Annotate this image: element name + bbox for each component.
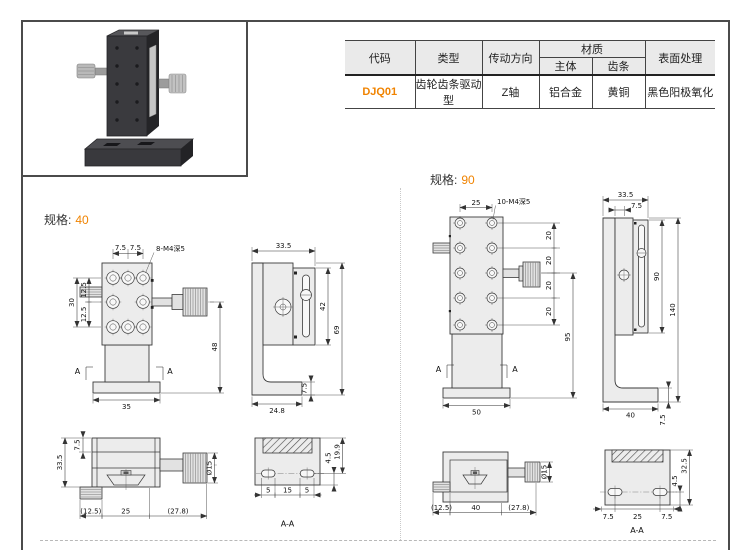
dim-label: 33.5 <box>276 242 292 250</box>
dim-label: 25 <box>472 199 481 207</box>
spec90-side-view: 33.5 7.5 90 140 40 7.5 <box>595 185 740 435</box>
col-header-code: 代码 <box>345 41 415 76</box>
spec-table: 代码 类型 传动方向 材质 表面处理 主体 齿条 DJQ01 齿轮齿条驱动型 Z… <box>345 40 715 109</box>
section-mark-label: A <box>436 365 442 374</box>
dim-label: 25 <box>121 507 130 515</box>
spec90-label: 规格:90 <box>430 171 475 188</box>
spec90-front-view: 25 10-M4深5 20 20 20 20 95 50 A A <box>425 195 610 435</box>
spec40-front-geometry <box>80 263 215 393</box>
dim-label: 12.5 <box>80 282 88 298</box>
catalog-page: 代码 类型 传动方向 材质 表面处理 主体 齿条 DJQ01 齿轮齿条驱动型 Z… <box>0 0 750 550</box>
dim-label: 32.5 <box>681 458 689 474</box>
section-mark-label: A <box>75 367 81 376</box>
spec90-section-view: 32.5 4.5 7.5 25 7.5 A-A <box>580 430 740 545</box>
dim-label: 15 <box>283 487 292 495</box>
dim-label: 19.9 <box>334 444 342 460</box>
dim-label: 50 <box>472 409 481 417</box>
spec40-label: 规格:40 <box>44 211 89 228</box>
spec90-top-geometry <box>433 452 548 502</box>
dim-label: 7.5 <box>661 513 672 521</box>
dim-label: 140 <box>669 303 677 316</box>
dim-label: 25 <box>633 513 642 521</box>
spec40-side-geometry <box>252 263 315 395</box>
dim-label: 5 <box>266 487 270 495</box>
cell-rack-material: 黄铜 <box>592 75 645 109</box>
spec90-value: 90 <box>461 173 474 187</box>
spec90-front-geometry <box>433 216 547 398</box>
spec-section-divider <box>400 188 401 540</box>
thread-callout: 10-M4深5 <box>497 197 530 206</box>
spec40-front-view: 7.5 7.5 8-M4深5 12.5 12.5 30 48 35 A A <box>55 235 230 423</box>
dim-label: Ø15 <box>541 465 549 479</box>
dim-label: 95 <box>564 333 572 342</box>
spec40-top-view: 33.5 7.5 Ø15 (12.5) 25 (27.8) <box>45 425 235 530</box>
section-mark-label: A <box>167 367 173 376</box>
dim-label: (12.5) <box>431 504 452 512</box>
spec40-label-text: 规格: <box>44 213 71 227</box>
dim-label: 40 <box>471 504 480 512</box>
dim-label: 7.5 <box>115 244 126 252</box>
dim-label: (27.8) <box>167 507 188 515</box>
thread-callout: 8-M4深5 <box>156 244 185 253</box>
spec40-section-geometry <box>255 438 324 485</box>
col-header-rack: 齿条 <box>592 58 645 76</box>
section-mark-label: A <box>512 365 518 374</box>
col-header-material: 材质 <box>539 41 645 58</box>
dim-label: 20 <box>545 281 553 290</box>
col-header-type: 类型 <box>415 41 482 76</box>
col-header-body: 主体 <box>539 58 592 76</box>
dim-label: 4.5 <box>325 452 333 463</box>
dim-label: 48 <box>211 343 219 352</box>
cell-surface: 黑色阳极氧化 <box>645 75 715 109</box>
dim-label: 7.5 <box>659 414 667 425</box>
dim-label: 20 <box>545 256 553 265</box>
spec40-top-geometry <box>80 438 217 499</box>
dim-label: 4.5 <box>671 475 679 486</box>
dim-label: 7.5 <box>74 439 82 450</box>
spec90-side-geometry <box>603 218 658 402</box>
cell-code: DJQ01 <box>345 75 415 109</box>
dim-label: 42 <box>319 302 327 311</box>
col-header-surface: 表面处理 <box>645 41 715 76</box>
section-title: A-A <box>630 526 644 535</box>
dim-label: Ø15 <box>206 461 214 475</box>
dim-label: (27.8) <box>508 504 529 512</box>
cell-body-material: 铝合金 <box>539 75 592 109</box>
dim-label: 35 <box>122 403 131 411</box>
dim-label: 33.5 <box>618 191 634 199</box>
dim-label: (12.5) <box>80 507 101 515</box>
dim-label: 20 <box>545 307 553 316</box>
spec40-side-view: 33.5 42 69 7.5 24.8 <box>240 235 360 425</box>
spec90-section-geometry <box>600 450 677 505</box>
dim-label: 5 <box>305 487 309 495</box>
col-header-direction: 传动方向 <box>482 41 539 76</box>
cell-direction: Z轴 <box>482 75 539 109</box>
dim-label: 7.5 <box>130 244 141 252</box>
cell-type: 齿轮齿条驱动型 <box>415 75 482 109</box>
dim-label: 20 <box>545 231 553 240</box>
dim-label: 12.5 <box>80 307 88 323</box>
section-title: A-A <box>281 520 295 529</box>
product-photo <box>23 22 246 175</box>
dim-label: 40 <box>626 412 635 420</box>
dim-label: 33.5 <box>56 455 64 471</box>
dim-label: 30 <box>68 298 76 307</box>
dim-label: 69 <box>333 326 341 335</box>
product-photo-box <box>21 20 248 177</box>
dim-label: 24.8 <box>269 407 285 415</box>
spec90-label-text: 规格: <box>430 173 457 187</box>
spec40-value: 40 <box>75 213 88 227</box>
dim-label: 7.5 <box>603 513 614 521</box>
dim-label: 7.5 <box>301 383 309 394</box>
dim-label: 7.5 <box>631 202 642 210</box>
dim-label: 90 <box>653 272 661 281</box>
spec40-section-view: 19.9 4.5 5 15 5 A-A <box>245 430 360 535</box>
